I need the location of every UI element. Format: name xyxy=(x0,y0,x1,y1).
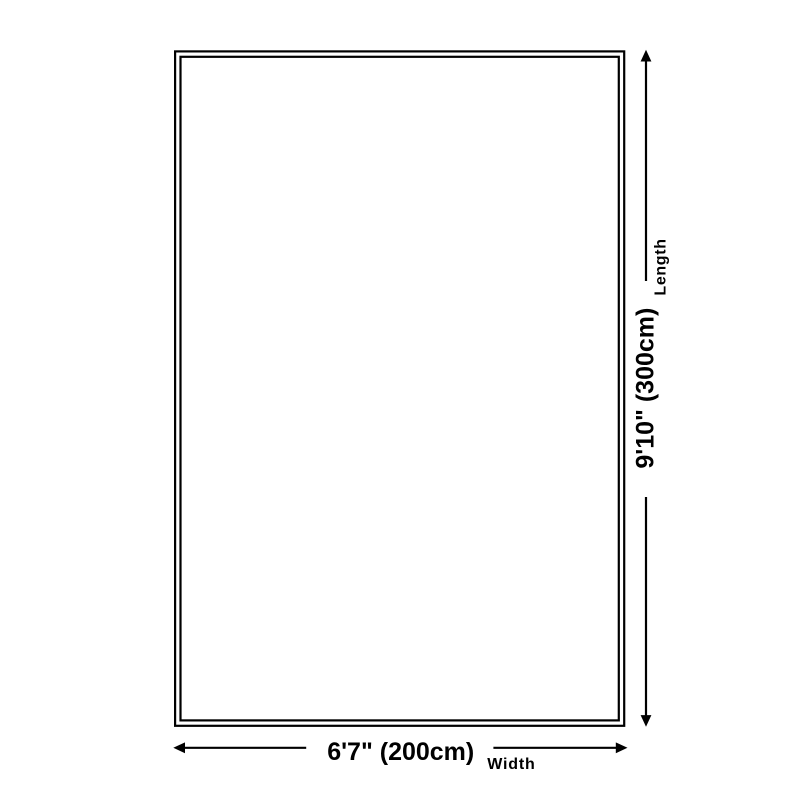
svg-text:Width: Width xyxy=(487,756,535,773)
svg-text:Length: Length xyxy=(653,238,670,295)
svg-text:9'10" (300cm): 9'10" (300cm) xyxy=(631,308,659,469)
svg-text:6'7" (200cm): 6'7" (200cm) xyxy=(327,738,474,766)
